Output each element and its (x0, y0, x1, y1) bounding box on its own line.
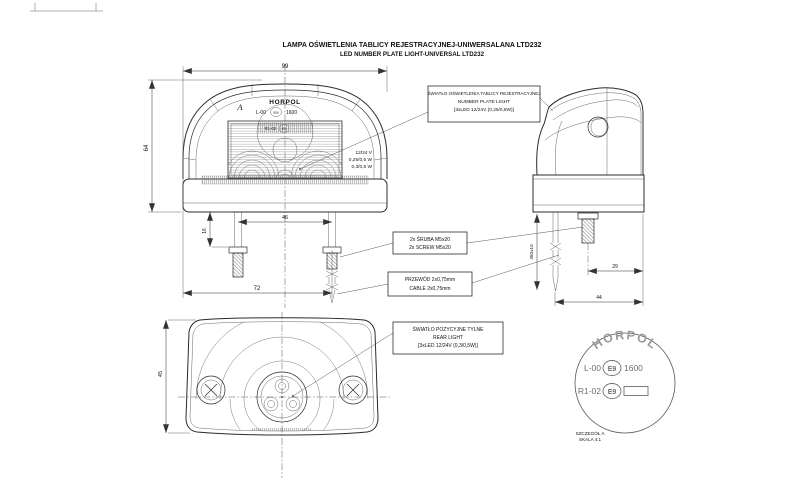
front-row1-number: 1600 (286, 110, 297, 116)
dim-front-height: 64 (144, 144, 150, 151)
detail-row1-prefix: L-00 (584, 363, 601, 373)
detail-row2-emark: E9 (608, 389, 617, 396)
front-row1-emark: E9 (274, 110, 280, 115)
detail-view: HORPOL L-00 E9 1600 R1-02 E9 SZCZEGÓŁ A … (575, 328, 675, 442)
svg-text:HORPOL: HORPOL (590, 328, 660, 352)
front-row2-emark: E9 (282, 127, 287, 131)
detail-row2: R1-02 E9 (578, 384, 648, 399)
right-screw-boss (339, 376, 367, 404)
detail-row2-prefix: R1-02 (578, 386, 601, 396)
front-brand-text: HORPOL (269, 99, 300, 106)
side-cable (550, 212, 561, 291)
detail-caption-scale: SKALA 4:1 (579, 437, 602, 442)
rating-power-plate: 0,25/0,5 W (349, 157, 373, 163)
bottom-dimensions: 45 (158, 320, 196, 433)
dim-base-width: 72 (254, 286, 261, 292)
callout-screws: 2x ŚRUBA M5x20 2x SCREW M5x20 (340, 227, 583, 257)
front-row2-prefix: R1-02 (265, 126, 277, 131)
callout-rear-line3: [3xLED 12/24V (0,3/0,5W)] (418, 343, 478, 349)
left-screw-boss (197, 376, 225, 404)
callout-npl-line1: ŚWIATŁO OŚWIETLENIA TABLICY REJESTRACYJN… (428, 89, 541, 96)
front-view: HORPOL L-00 E9 1600 R1-02 E9 A 12/24 V 0… (144, 64, 387, 308)
detail-caption-name: SZCZEGÓŁ A (576, 430, 606, 436)
drawing-svg: LAMPA OŚWIETLENIA TABLICY REJESTRACYJNEJ… (0, 0, 800, 489)
callout-rear-line2: REAR LIGHT (433, 335, 463, 341)
bottom-view: 45 (158, 312, 390, 478)
front-row1-prefix: L-00 (256, 110, 266, 116)
callout-npl-line2: NUMBER PLATE LIGHT (458, 99, 510, 105)
callout-cable: PRZEWÓD 2x0,75mm CABLE 2x0,75mm (337, 255, 559, 296)
dim-screw-offset: 29 (612, 264, 618, 270)
title-line2: LED NUMBER PLATE LIGHT-UNIVERSAL LTD232 (340, 51, 485, 58)
dim-depth: 44 (596, 295, 602, 301)
callout-screws-line2: 2x SCREW M5x20 (409, 245, 451, 251)
drawing-title: LAMPA OŚWIETLENIA TABLICY REJESTRACYJNEJ… (283, 40, 542, 58)
detail-brand-text: HORPOL (590, 328, 660, 352)
side-view: 450±10 29 44 (529, 88, 644, 306)
dim-hole-spacing: 46 (282, 215, 288, 221)
dim-front-width: 99 (282, 64, 289, 70)
front-approval-row1: L-00 E9 1600 (256, 108, 297, 117)
side-screw (578, 213, 598, 276)
front-ratings: 12/24 V 0,25/0,5 W 0,3/0,5 W (349, 150, 373, 170)
rating-voltage: 12/24 V (355, 150, 372, 156)
title-line1: LAMPA OŚWIETLENIA TABLICY REJESTRACYJNEJ… (283, 40, 542, 49)
callout-cable-line1: PRZEWÓD 2x0,75mm (405, 276, 455, 283)
detail-marker-a: A (236, 102, 243, 112)
callout-rear-line1: ŚWIATŁO POZYCYJNE TYLNE (413, 325, 485, 333)
callout-cable-line2: CABLE 2x0,75mm (409, 286, 450, 292)
approval-number-placeholder (624, 387, 648, 396)
callout-rear-light: ŚWIATŁO POZYCYJNE TYLNE REAR LIGHT [3xLE… (292, 322, 503, 397)
rating-power-rear: 0,3/0,5 W (351, 164, 372, 170)
dim-cable-length: 450±10 (529, 244, 534, 260)
dim-screw-length: 16 (202, 228, 208, 234)
sheet-frame-corner (30, 3, 103, 11)
detail-row1-emark: E9 (608, 366, 617, 373)
detail-row1-number: 1600 (624, 363, 643, 373)
dim-bottom-height: 45 (158, 371, 164, 377)
technical-drawing-sheet: LAMPA OŚWIETLENIA TABLICY REJESTRACYJNEJ… (0, 0, 800, 489)
callout-screws-line1: 2x ŚRUBA M5x20 (410, 235, 450, 243)
callout-npl-line3: [3xLED 12/24V (0,25/0,5W)] (454, 107, 514, 113)
detail-row1: L-00 E9 1600 (584, 361, 643, 376)
